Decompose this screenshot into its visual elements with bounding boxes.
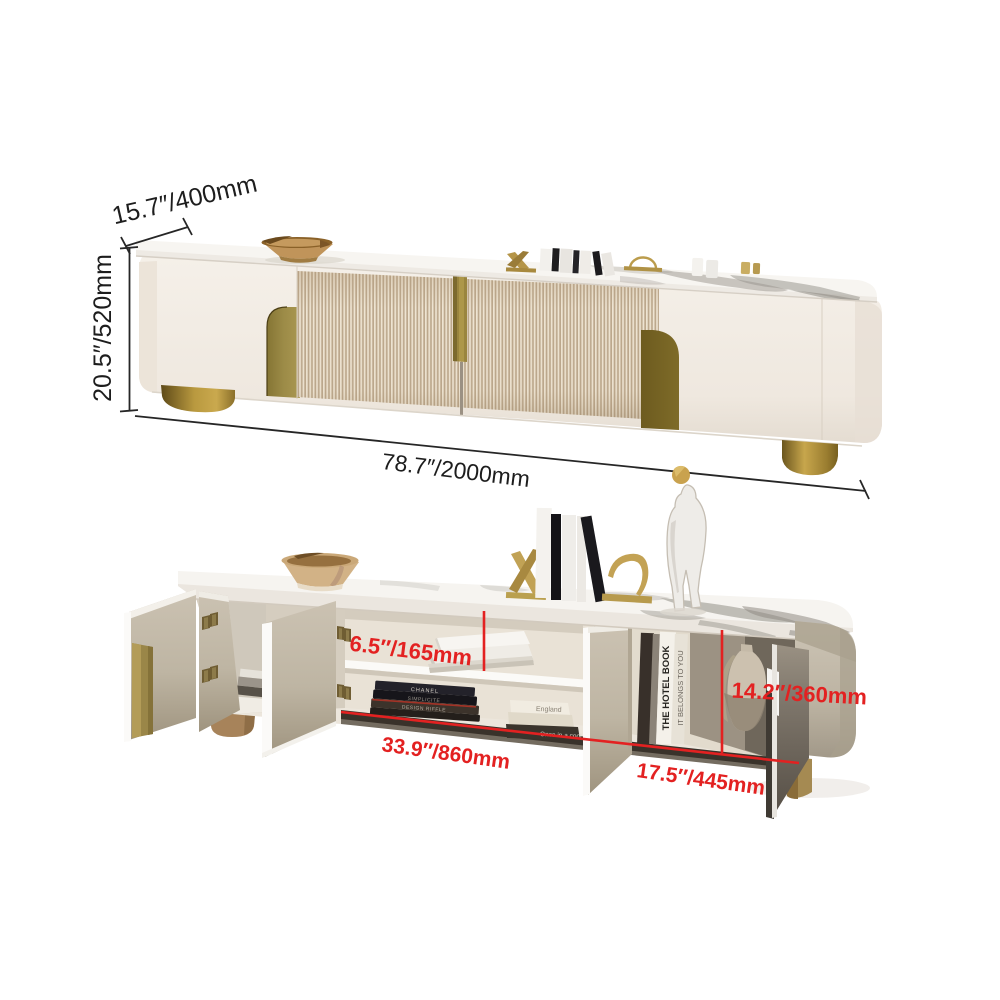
svg-text:THE HOTEL BOOK: THE HOTEL BOOK <box>661 645 672 730</box>
svg-text:IT BELONGS TO YOU: IT BELONGS TO YOU <box>676 650 685 725</box>
svg-text:20.5″/520mm: 20.5″/520mm <box>89 254 117 402</box>
svg-text:England: England <box>536 706 562 714</box>
